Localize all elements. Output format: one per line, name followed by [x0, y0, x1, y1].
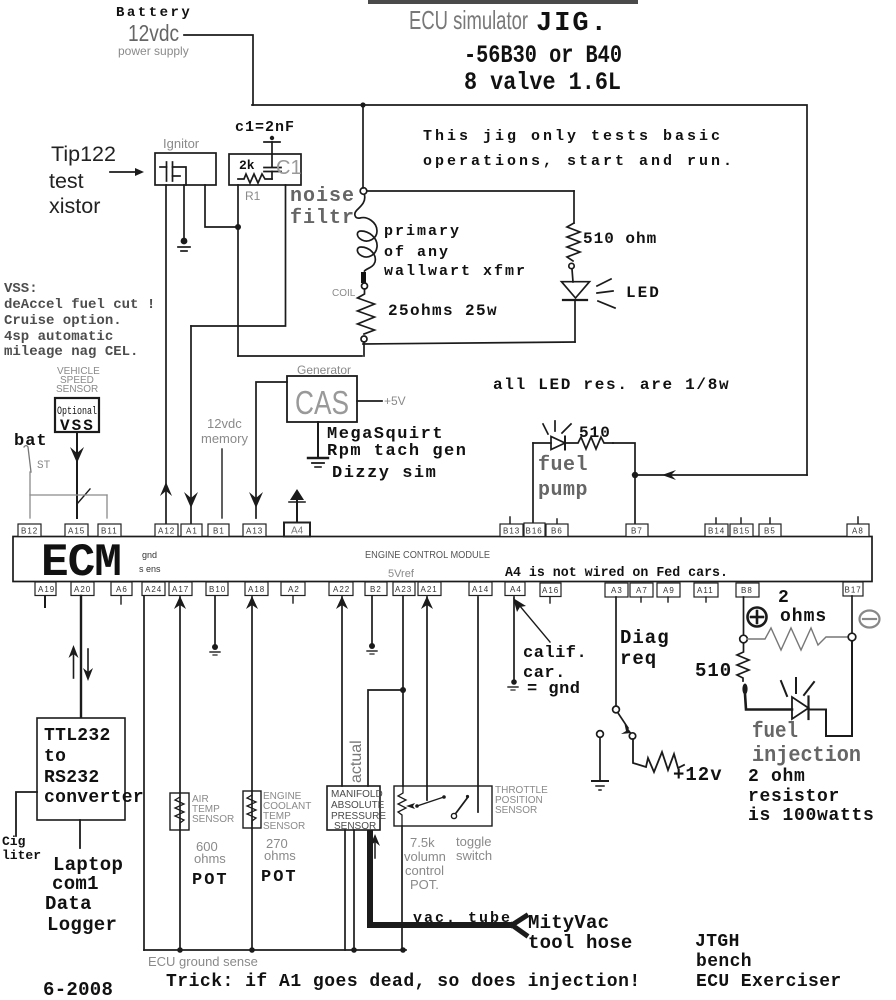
- svg-text:A4: A4: [291, 526, 304, 537]
- svg-text:B14: B14: [708, 527, 725, 536]
- svg-text:B12: B12: [21, 527, 38, 536]
- svg-text:primary: primary: [384, 223, 461, 240]
- svg-text:all LED res. are 1/8w: all LED res. are 1/8w: [493, 376, 730, 394]
- svg-text:2: 2: [778, 588, 790, 608]
- svg-text:A3: A3: [611, 586, 623, 595]
- svg-text:2k: 2k: [239, 158, 255, 173]
- svg-text:B10: B10: [209, 585, 226, 594]
- svg-text:A22: A22: [333, 585, 350, 594]
- svg-text:ECU Exerciser: ECU Exerciser: [696, 972, 842, 992]
- svg-text:VSS:: VSS:: [4, 281, 38, 297]
- svg-text:Data: Data: [45, 893, 92, 915]
- svg-text:actual: actual: [348, 740, 365, 783]
- svg-text:B16: B16: [526, 527, 543, 536]
- svg-text:wallwart xfmr: wallwart xfmr: [384, 263, 527, 280]
- svg-text:s ens: s ens: [139, 564, 161, 574]
- svg-text:LED: LED: [626, 284, 661, 302]
- svg-text:SENSOR: SENSOR: [192, 814, 234, 825]
- svg-text:injection: injection: [752, 743, 861, 768]
- svg-text:ECU simulator: ECU simulator: [409, 5, 528, 35]
- svg-text:12vdc: 12vdc: [207, 416, 242, 431]
- svg-text:= gnd: = gnd: [527, 680, 581, 699]
- svg-text:Cig: Cig: [2, 834, 26, 849]
- svg-text:A6: A6: [116, 585, 128, 594]
- svg-text:B17: B17: [845, 586, 862, 595]
- svg-text:Tip122: Tip122: [51, 142, 116, 166]
- svg-text:B5: B5: [764, 527, 776, 536]
- svg-text:510: 510: [579, 424, 611, 442]
- svg-text:510: 510: [695, 660, 732, 682]
- svg-text:2 ohm: 2 ohm: [748, 767, 806, 787]
- svg-text:to: to: [44, 747, 66, 767]
- svg-text:volumn: volumn: [404, 849, 446, 864]
- svg-text:ECM: ECM: [41, 537, 121, 589]
- svg-text:A13: A13: [246, 527, 263, 536]
- svg-text:SENSOR: SENSOR: [263, 821, 305, 832]
- svg-text:switch: switch: [456, 848, 492, 863]
- svg-text:+12v: +12v: [673, 764, 723, 786]
- svg-text:A19: A19: [38, 585, 55, 594]
- svg-text:pump: pump: [538, 479, 588, 502]
- svg-text:ABSOLUTE: ABSOLUTE: [331, 800, 385, 811]
- svg-text:B13: B13: [503, 527, 520, 536]
- svg-text:6-2008: 6-2008: [43, 979, 113, 1000]
- svg-text:4sp automatic: 4sp automatic: [4, 329, 113, 345]
- svg-text:A7: A7: [636, 586, 648, 595]
- svg-text:ohms: ohms: [194, 851, 226, 866]
- svg-text:ST: ST: [37, 460, 51, 472]
- svg-text:B1: B1: [213, 527, 225, 536]
- svg-text:A14: A14: [472, 585, 489, 594]
- svg-text:deAccel fuel cut !: deAccel fuel cut !: [4, 297, 155, 313]
- svg-text:Diag: Diag: [620, 627, 670, 649]
- svg-text:com1: com1: [52, 873, 99, 895]
- svg-text:liter: liter: [2, 848, 41, 863]
- svg-text:12vdc: 12vdc: [128, 20, 179, 46]
- svg-text:is 100watts: is 100watts: [748, 806, 875, 826]
- svg-text:operations, start and run.: operations, start and run.: [423, 153, 735, 170]
- svg-text:Cruise option.: Cruise option.: [4, 313, 122, 329]
- svg-text:Trick: if A1 goes dead, so doe: Trick: if A1 goes dead, so does injectio…: [166, 972, 641, 992]
- svg-text:TTL232: TTL232: [44, 726, 111, 746]
- svg-text:7.5k: 7.5k: [410, 835, 435, 850]
- svg-text:A12: A12: [158, 527, 175, 536]
- svg-text:5Vref: 5Vref: [388, 568, 415, 580]
- svg-text:A18: A18: [248, 585, 265, 594]
- svg-text:gnd: gnd: [142, 550, 157, 560]
- svg-text:calif.: calif.: [523, 644, 587, 663]
- svg-text:A16: A16: [542, 586, 559, 595]
- svg-text:noise: noise: [290, 185, 355, 208]
- svg-text:B6: B6: [551, 527, 563, 536]
- svg-text:Dizzy sim: Dizzy sim: [332, 464, 437, 483]
- svg-text:Rpm tach gen: Rpm tach gen: [327, 442, 467, 461]
- svg-text:POT.: POT.: [410, 877, 439, 892]
- svg-text:POT: POT: [261, 868, 298, 887]
- svg-text:510 ohm: 510 ohm: [583, 230, 657, 248]
- svg-text:25ohms 25w: 25ohms 25w: [388, 302, 498, 320]
- svg-text:xistor: xistor: [49, 194, 100, 218]
- svg-text:A1: A1: [186, 527, 198, 536]
- svg-text:POT: POT: [192, 871, 229, 890]
- svg-text:vac. tube: vac. tube: [413, 910, 512, 927]
- svg-text:A2: A2: [288, 585, 300, 594]
- svg-text:+5V: +5V: [384, 394, 406, 408]
- svg-text:Logger: Logger: [47, 914, 117, 936]
- svg-text:MityVac: MityVac: [528, 912, 609, 934]
- svg-text:filtr: filtr: [290, 207, 355, 230]
- svg-text:A15: A15: [68, 527, 85, 536]
- svg-text:A11: A11: [697, 586, 714, 595]
- svg-text:bat: bat: [14, 432, 48, 451]
- svg-text:memory: memory: [201, 431, 248, 446]
- svg-text:A21: A21: [421, 585, 438, 594]
- svg-text:B11: B11: [101, 527, 118, 536]
- svg-text:Battery: Battery: [116, 5, 192, 21]
- svg-text:Generator: Generator: [297, 363, 351, 377]
- svg-text:-56B30 or B40: -56B30 or B40: [464, 41, 622, 70]
- svg-text:MANIFOLD: MANIFOLD: [331, 789, 383, 800]
- svg-text:B7: B7: [631, 527, 643, 536]
- svg-text:R1: R1: [245, 189, 261, 203]
- svg-text:tool hose: tool hose: [528, 932, 632, 954]
- svg-text:A24: A24: [145, 585, 162, 594]
- svg-text:ohms: ohms: [264, 848, 296, 863]
- svg-text:A9: A9: [663, 586, 675, 595]
- svg-text:A23: A23: [395, 585, 412, 594]
- svg-text:ECU ground sense: ECU ground sense: [148, 954, 258, 969]
- svg-text:JTGH: JTGH: [695, 932, 740, 952]
- svg-text:CAS: CAS: [295, 384, 349, 421]
- svg-text:COIL: COIL: [332, 288, 356, 299]
- svg-text:converter: converter: [44, 788, 144, 808]
- svg-text:8 valve 1.6L: 8 valve 1.6L: [464, 68, 621, 97]
- svg-text:toggle: toggle: [456, 834, 491, 849]
- svg-text:SENSOR: SENSOR: [56, 384, 98, 395]
- svg-text:JIG.: JIG.: [536, 9, 609, 39]
- svg-text:c1=2nF: c1=2nF: [235, 119, 295, 136]
- svg-text:fuel: fuel: [752, 719, 798, 744]
- svg-text:resistor: resistor: [748, 787, 840, 807]
- svg-text:bench: bench: [696, 952, 752, 972]
- svg-text:test: test: [49, 169, 84, 193]
- svg-text:B8: B8: [741, 586, 753, 595]
- svg-text:SENSOR: SENSOR: [495, 805, 537, 816]
- svg-text:ohms: ohms: [780, 607, 827, 627]
- svg-text:B2: B2: [370, 585, 382, 594]
- svg-text:fuel: fuel: [538, 454, 588, 477]
- svg-text:A8: A8: [852, 527, 864, 536]
- svg-text:A4: A4: [510, 585, 522, 594]
- svg-text:A4 is not wired on Fed cars.: A4 is not wired on Fed cars.: [505, 565, 728, 581]
- svg-text:mileage nag CEL.: mileage nag CEL.: [4, 344, 138, 360]
- svg-text:A17: A17: [172, 585, 189, 594]
- svg-text:RS232: RS232: [44, 768, 100, 788]
- svg-text:This jig only tests basic: This jig only tests basic: [423, 128, 723, 145]
- svg-text:control: control: [405, 863, 444, 878]
- svg-text:C1: C1: [276, 157, 302, 179]
- svg-text:B15: B15: [733, 527, 750, 536]
- svg-text:of any: of any: [384, 244, 450, 261]
- svg-text:Ignitor: Ignitor: [163, 136, 200, 151]
- svg-text:A20: A20: [74, 585, 91, 594]
- svg-text:power supply: power supply: [118, 44, 189, 58]
- svg-text:ENGINE CONTROL MODULE: ENGINE CONTROL MODULE: [365, 550, 490, 561]
- svg-text:req: req: [620, 648, 657, 670]
